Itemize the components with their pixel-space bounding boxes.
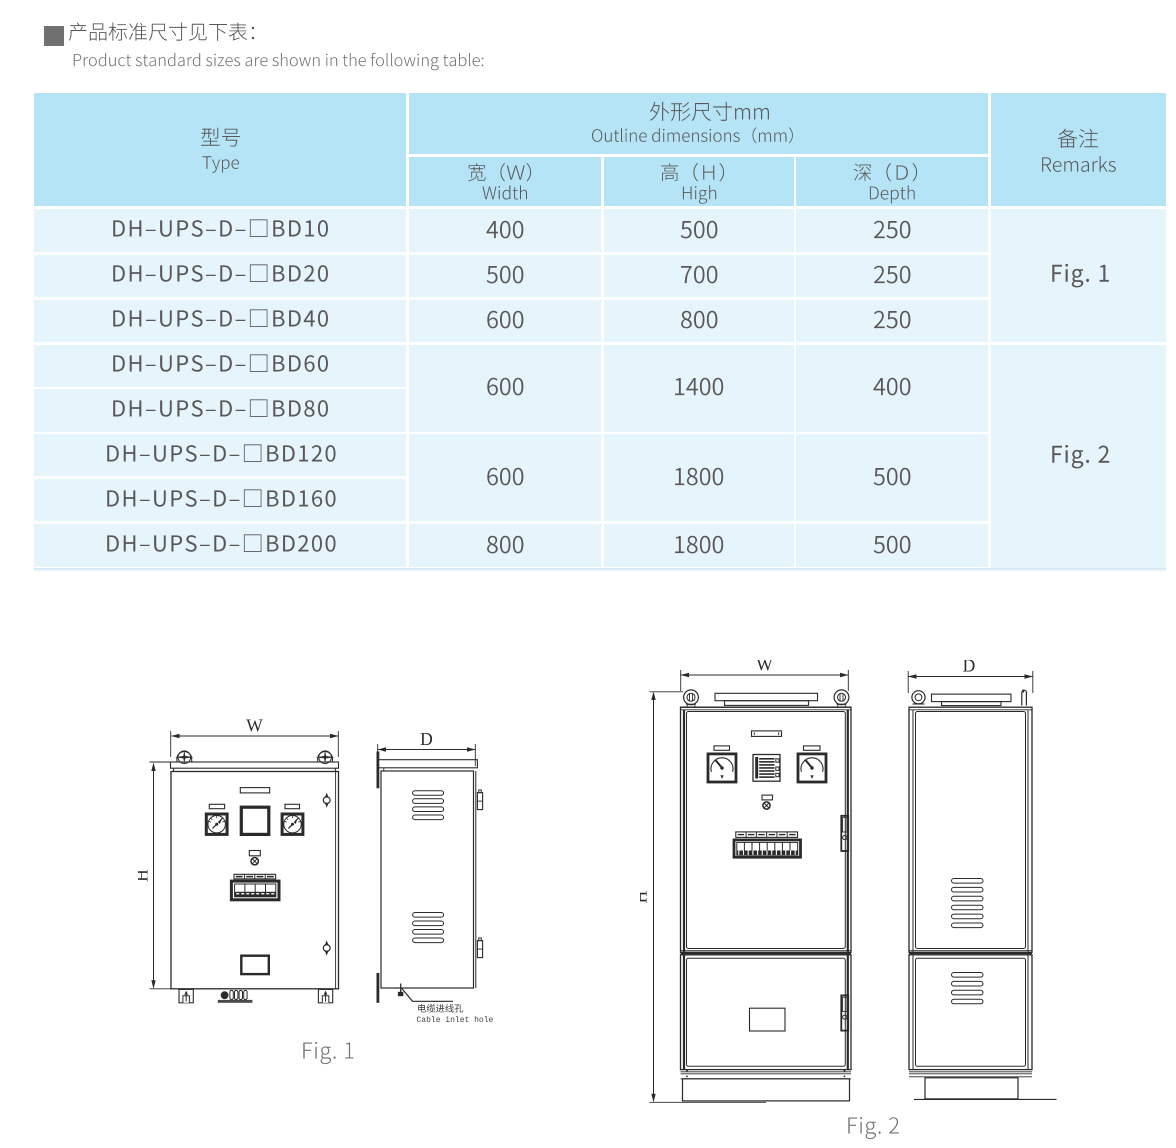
svg-text:W: W — [246, 716, 263, 736]
svg-text:D: D — [420, 729, 433, 749]
svg-text:D: D — [963, 660, 976, 676]
svg-text:H: H — [640, 890, 651, 903]
svg-text:W: W — [756, 660, 773, 675]
svg-text:H: H — [138, 869, 152, 882]
